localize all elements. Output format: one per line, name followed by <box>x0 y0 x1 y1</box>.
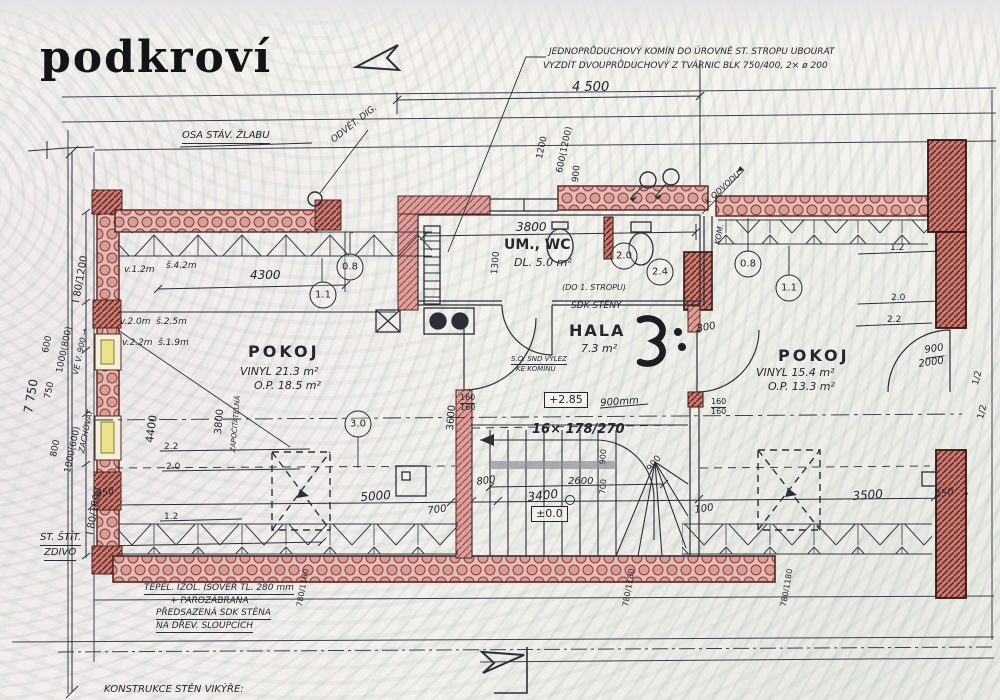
room-pokoj-right-floor: VINYL 15.4 m² <box>756 367 834 379</box>
note-vent-hood: ODVĚT. DIG. <box>330 104 379 146</box>
dim-700-left: 700 <box>427 504 447 517</box>
dim-window-80-1200: I 80/1200 <box>72 255 91 304</box>
dim-900-winder: 900 <box>646 454 664 473</box>
dim-3500: 3500 <box>852 488 883 503</box>
note-k-odvodu: K ODVODU <box>704 171 742 207</box>
dim-4300: 4300 <box>250 269 281 282</box>
height-circle-08-left: 0.8 <box>337 254 364 281</box>
room-pokoj-left-floor: VINYL 21.3 m² <box>240 366 318 378</box>
dim-s42-left: š.4.2m <box>166 262 197 271</box>
note-keep: ZACHOVAT <box>78 409 95 453</box>
note-hatch-2: KE KOMÍNU <box>516 366 556 373</box>
note-sill-900: VE V. 900 → <box>72 328 90 376</box>
dim-780-1180-b: 780/1180 <box>622 568 637 607</box>
dim-4400: 4400 <box>144 414 159 443</box>
dim-800-left: 800 <box>50 439 63 458</box>
height-circle-30-left: 3.0 <box>345 411 372 438</box>
note-dormer-walls: KONSTRUKCE STĚN VIKÝŘE: <box>104 685 244 696</box>
dim-900mm: 900mm <box>600 396 639 409</box>
annotations-layer: JEDNOPRŮDUCHOVÝ KOMÍN DO ÚROVNĚ ST. STRO… <box>0 0 1000 700</box>
level-000: ±0.0 <box>531 506 568 522</box>
dim-900-tread: 900 <box>599 449 609 465</box>
dim-450-left: 450 <box>96 487 115 500</box>
dim-half-a: 1/2 <box>972 370 985 386</box>
dim-100-mid: 100 <box>694 503 714 516</box>
dim-22-left: 2.2 <box>164 443 178 452</box>
room-pokoj-right-area: O.P. 13.3 m² <box>768 381 835 393</box>
height-circle-20-wc: 2.0 <box>611 243 638 270</box>
room-pokoj-right: POKOJ <box>778 348 850 365</box>
height-circle-24-wc: 2.4 <box>647 259 674 286</box>
dim-3600: 3600 <box>446 405 459 431</box>
dim-22-right: 2.2 <box>887 316 901 325</box>
room-hala: HALA <box>569 323 625 340</box>
dim-h12-left: v.1.2m <box>124 266 155 275</box>
room-hala-area: 7.3 m² <box>581 343 617 355</box>
dim-3800-wc: 3800 <box>516 221 547 234</box>
dim-780-1180-c: 780/1180 <box>780 568 795 607</box>
dim-3400: 3400 <box>527 488 559 504</box>
dim-900-top: 900 <box>572 165 583 183</box>
dim-450-right: 450 <box>934 488 955 502</box>
room-umwc: UM., WC <box>504 238 571 253</box>
dim-20-right: 2.0 <box>891 294 905 303</box>
dim-1200: 1200 <box>536 136 550 160</box>
dim-750: 750 <box>44 381 57 400</box>
height-circle-11-left: 1.1 <box>310 282 337 309</box>
dim-780-1180-a: 780/1180 <box>296 568 311 607</box>
note-gable-1: ST. ŠTÍT. <box>40 533 81 546</box>
note-countable: ZAPOČITATELNÁ <box>230 395 242 452</box>
note-hatch-1: S.O. SND VÝLEZ <box>511 356 567 365</box>
dim-12-right: 1.2 <box>890 244 904 253</box>
level-285: +2.85 <box>544 392 588 408</box>
note-gutter-axis: OSA STÁV. ŽLABU <box>182 131 270 144</box>
note-gable-2: ZDIVO <box>44 548 76 561</box>
note-chimney-2: VYZDÍT DVOUPRŮDUCHOVÝ Z TVÁRNIC BLK 750/… <box>543 62 828 71</box>
room-pokoj-left: POKOJ <box>248 344 320 361</box>
dim-5000: 5000 <box>360 489 391 504</box>
dim-160-160-b2: 160 <box>711 408 726 416</box>
dim-h20-left: v.2.0m š.2.5m <box>120 318 187 327</box>
note-insul-2: + PAROZÁBRANA <box>170 597 249 606</box>
dim-800-hala: 800 <box>696 322 717 336</box>
note-to-ceiling: (DO 1. STROPU) <box>562 284 626 292</box>
dim-half-b: 1/2 <box>977 404 990 420</box>
dim-800-stair: 800 <box>476 475 496 488</box>
stair-formula: 16× 178/270 <box>532 423 625 437</box>
dim-h22-left: v.2.2m š.1.9m <box>122 339 189 348</box>
room-pokoj-left-area: O.P. 18.5 m² <box>254 380 321 392</box>
dim-3800-left: 3800 <box>214 409 227 435</box>
room-umwc-area: DL. 5.0 m² <box>514 257 572 269</box>
dim-20-left: 2.0 <box>166 463 180 472</box>
note-sdk-walls: SDK STĚNY <box>571 302 622 311</box>
note-insul-4: NA DŘEV. SLOUPCÍCH <box>156 622 253 633</box>
dim-2600: 2600 <box>568 477 593 488</box>
height-circle-08-right: 0.8 <box>735 251 762 278</box>
dim-12-left: 1.2 <box>164 513 178 522</box>
dim-door-2000: 2000 <box>918 356 945 370</box>
dim-4500: 4 500 <box>572 81 609 95</box>
note-kom: KOM. <box>714 224 726 246</box>
dim-1300: 1300 <box>491 251 502 275</box>
floor-plan-sheet: podkroví JEDNOPRŮDUCHOVÝ KOMÍN DO ÚROVNĚ… <box>0 0 1000 700</box>
dim-600-left: 600 <box>42 335 55 354</box>
height-circle-11-right: 1.1 <box>776 275 803 302</box>
dim-160-160-a2: 160 <box>460 404 475 412</box>
dim-700-tread: 700 <box>599 479 609 495</box>
note-insul-3: PŘEDSAZENÁ SDK STĚNA <box>156 609 271 620</box>
note-insul-1: TEPEL. IZOL. ISOVER TL. 280 mm <box>144 584 294 595</box>
note-chimney-1: JEDNOPRŮDUCHOVÝ KOMÍN DO ÚROVNĚ ST. STRO… <box>549 48 835 57</box>
dim-7750: 7 750 <box>22 378 40 414</box>
